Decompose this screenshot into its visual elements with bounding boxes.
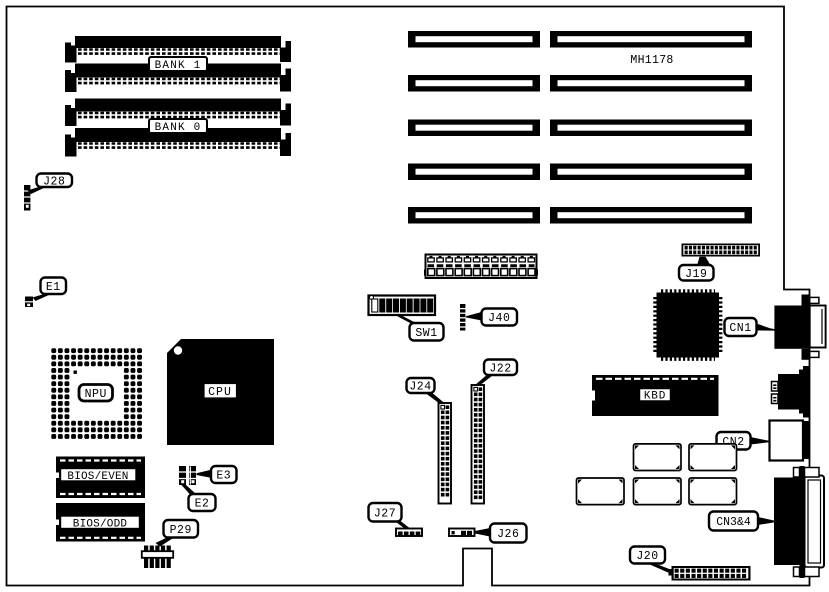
svg-text:CPU: CPU bbox=[208, 386, 232, 399]
svg-text:BANK 0: BANK 0 bbox=[155, 122, 202, 134]
svg-text:BIOS/EVEN: BIOS/EVEN bbox=[67, 471, 128, 483]
svg-text:J20: J20 bbox=[636, 550, 658, 563]
svg-text:P29: P29 bbox=[170, 524, 192, 537]
svg-text:E3: E3 bbox=[216, 470, 231, 483]
svg-text:MH1178: MH1178 bbox=[630, 54, 673, 67]
svg-text:CN3&4: CN3&4 bbox=[716, 516, 751, 529]
svg-text:KBD: KBD bbox=[644, 391, 666, 403]
svg-text:CN1: CN1 bbox=[729, 322, 751, 335]
svg-text:J28: J28 bbox=[43, 175, 65, 188]
svg-text:J22: J22 bbox=[489, 362, 511, 375]
svg-text:J26: J26 bbox=[497, 528, 519, 541]
svg-text:BIOS/ODD: BIOS/ODD bbox=[73, 519, 128, 531]
svg-text:J40: J40 bbox=[488, 312, 510, 325]
svg-text:NPU: NPU bbox=[85, 388, 107, 401]
svg-text:BANK 1: BANK 1 bbox=[155, 60, 202, 72]
svg-text:SW1: SW1 bbox=[415, 327, 437, 340]
svg-text:J19: J19 bbox=[685, 268, 707, 281]
svg-text:J24: J24 bbox=[409, 381, 431, 394]
svg-text:J27: J27 bbox=[374, 507, 396, 520]
svg-text:E2: E2 bbox=[195, 498, 210, 511]
svg-text:E1: E1 bbox=[46, 281, 61, 294]
